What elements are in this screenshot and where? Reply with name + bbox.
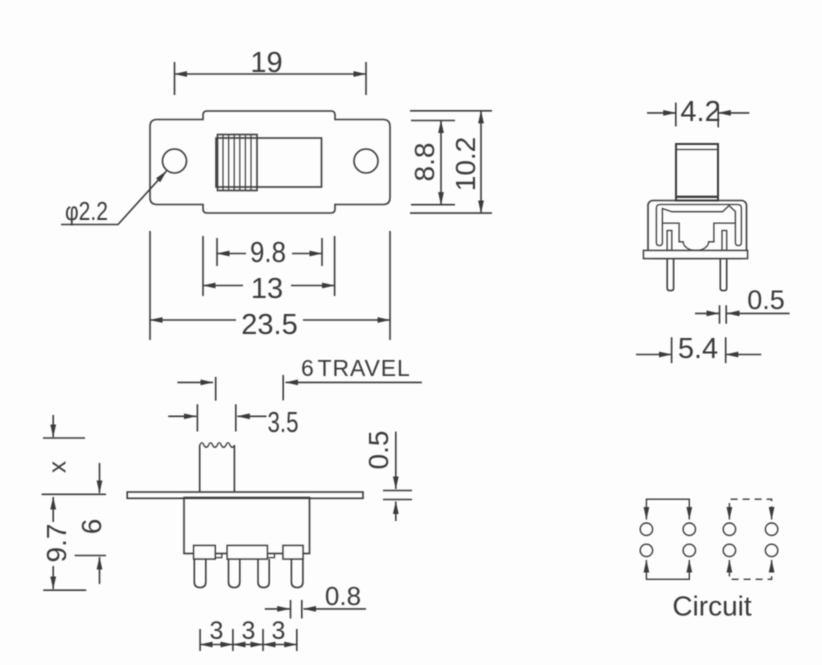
svg-text:9.7: 9.7 xyxy=(41,524,72,563)
svg-text:10.2: 10.2 xyxy=(450,137,481,192)
svg-text:6: 6 xyxy=(301,355,314,381)
svg-text:9.8: 9.8 xyxy=(250,237,286,269)
svg-text:19: 19 xyxy=(250,47,282,79)
svg-text:φ2.2: φ2.2 xyxy=(65,196,108,226)
svg-text:TRAVEL: TRAVEL xyxy=(318,355,411,381)
svg-text:8.8: 8.8 xyxy=(409,143,440,182)
svg-text:13: 13 xyxy=(251,273,283,305)
svg-text:23.5: 23.5 xyxy=(241,309,297,341)
svg-text:3.5: 3.5 xyxy=(268,407,299,439)
svg-text:3: 3 xyxy=(210,617,224,645)
svg-text:x: x xyxy=(45,461,72,473)
svg-text:Circuit: Circuit xyxy=(672,591,752,622)
svg-text:3: 3 xyxy=(241,617,255,645)
svg-text:6: 6 xyxy=(76,519,107,535)
svg-text:0.8: 0.8 xyxy=(325,581,361,611)
svg-text:0.5: 0.5 xyxy=(363,431,394,470)
svg-text:4.2: 4.2 xyxy=(680,96,720,128)
svg-text:5.4: 5.4 xyxy=(678,333,718,365)
svg-text:0.5: 0.5 xyxy=(747,285,785,315)
svg-text:3: 3 xyxy=(272,617,286,645)
